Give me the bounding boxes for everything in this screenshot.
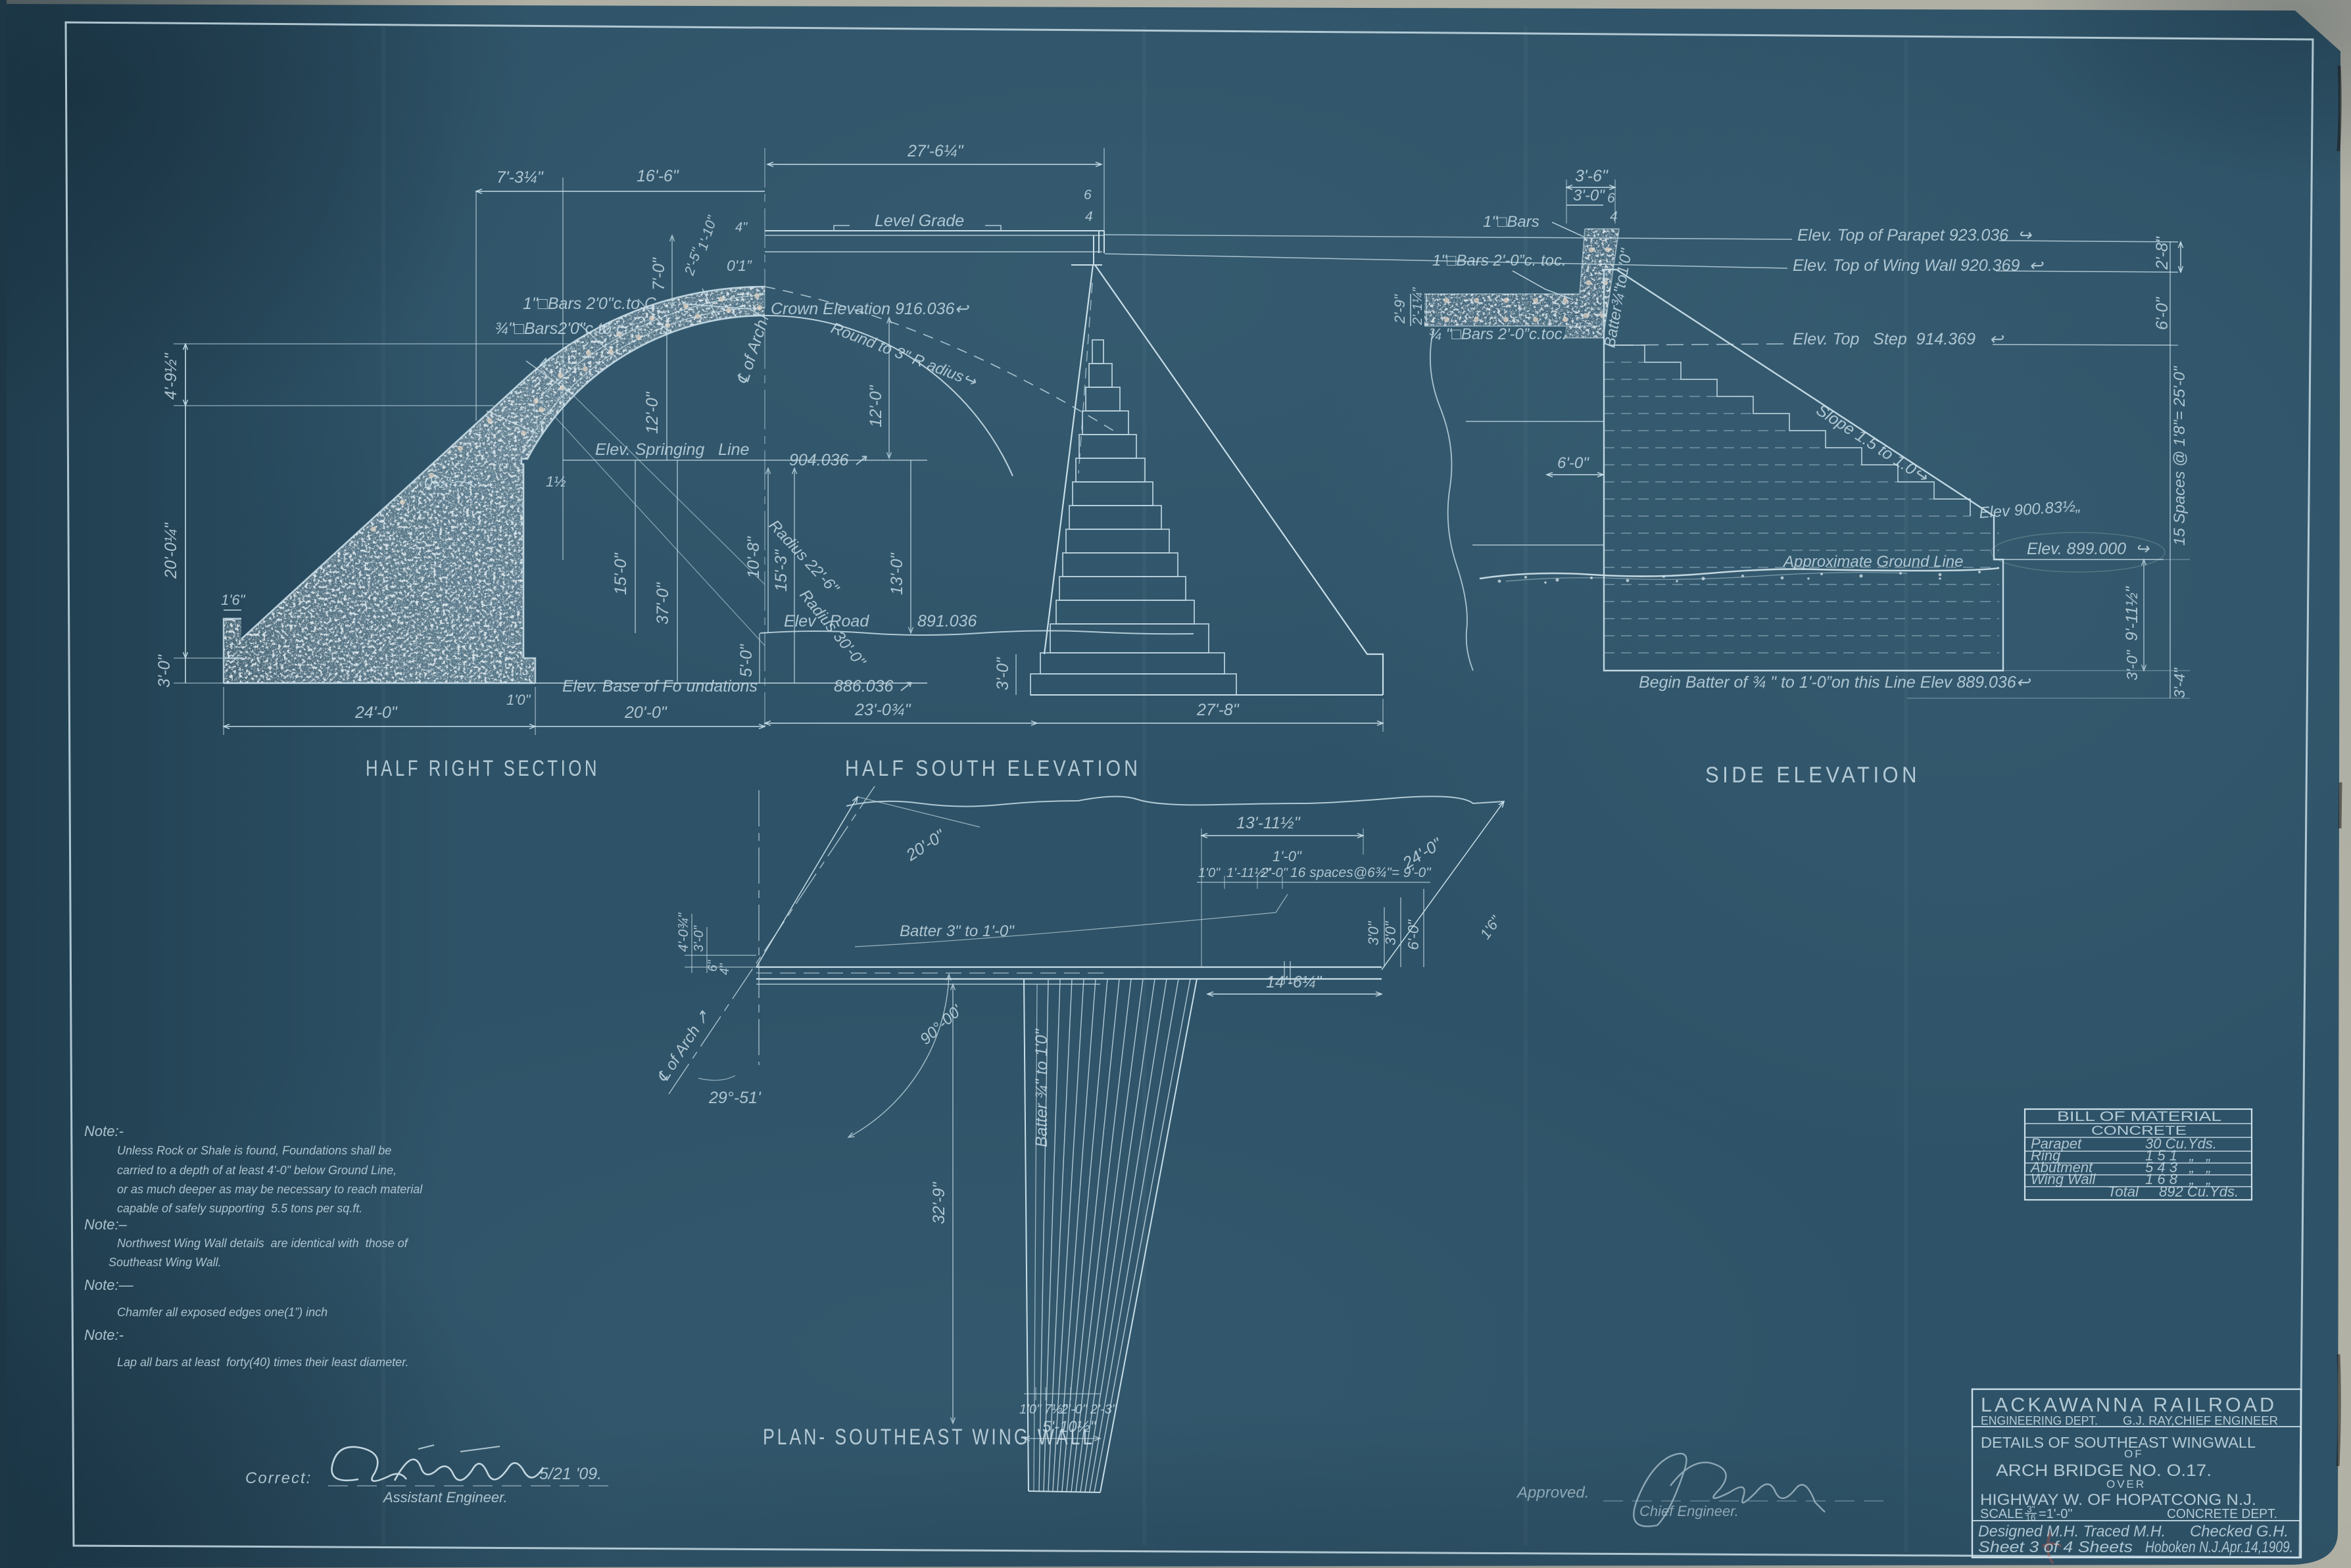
svg-text:4": 4" bbox=[735, 220, 748, 235]
svg-text:892 Cu.Yds.: 892 Cu.Yds. bbox=[2159, 1183, 2239, 1200]
svg-text:or as much deeper as may be ne: or as much deeper as may be necessary to… bbox=[117, 1183, 423, 1196]
svg-text:1"□Bars 2'0"c.to.C.: 1"□Bars 2'0"c.to.C. bbox=[523, 295, 661, 313]
svg-text:13'-11½": 13'-11½" bbox=[1236, 814, 1301, 832]
svg-text:Level Grade: Level Grade bbox=[875, 212, 964, 230]
svg-text:Southeast Wing Wall.: Southeast Wing Wall. bbox=[109, 1256, 222, 1269]
svg-text:3'-0": 3'-0" bbox=[1573, 187, 1605, 204]
svg-text:OF: OF bbox=[2124, 1448, 2144, 1460]
svg-text:32'-9": 32'-9" bbox=[930, 1181, 948, 1224]
svg-text:Chamfer all exposed edges one(: Chamfer all exposed edges one(1”) inch bbox=[117, 1306, 327, 1319]
svg-text:Unless Rock or Shale is found,: Unless Rock or Shale is found, Foundatio… bbox=[117, 1144, 391, 1157]
svg-text:2'-3": 2'-3" bbox=[1090, 1402, 1117, 1417]
svg-text:Checked G.H.: Checked G.H. bbox=[2190, 1523, 2289, 1540]
svg-text:3'-0": 3'-0" bbox=[994, 657, 1012, 690]
svg-text:20'-0¼": 20'-0¼" bbox=[162, 522, 180, 579]
svg-text:Designed M.H. Traced M.H.: Designed M.H. Traced M.H. bbox=[1978, 1523, 2166, 1540]
svg-text:Elev Road: Elev Road bbox=[784, 612, 869, 630]
svg-text:1'-0": 1'-0" bbox=[1272, 848, 1302, 865]
svg-text:PLAN- SOUTHEAST WING WALL: PLAN- SOUTHEAST WING WALL bbox=[763, 1425, 1095, 1450]
svg-text:6: 6 bbox=[1607, 191, 1615, 206]
svg-text:1'0": 1'0" bbox=[1198, 866, 1221, 880]
svg-text:3'0": 3'0" bbox=[1365, 920, 1382, 945]
svg-text:15 Spaces @ 1'8"= 25'-0": 15 Spaces @ 1'8"= 25'-0" bbox=[2171, 366, 2189, 546]
svg-text:5'-0": 5'-0" bbox=[737, 644, 756, 677]
svg-text:1'6": 1'6" bbox=[221, 592, 246, 608]
svg-text:12'-0": 12'-0" bbox=[867, 385, 885, 427]
svg-text:886.036 ↗: 886.036 ↗ bbox=[834, 677, 912, 696]
svg-text:0'1”: 0'1” bbox=[727, 257, 752, 274]
svg-text:¾ "□Bars 2'-0”c.toc.: ¾ "□Bars 2'-0”c.toc. bbox=[1428, 325, 1566, 343]
svg-text:7'-0": 7'-0" bbox=[650, 257, 668, 291]
svg-text:4: 4 bbox=[1610, 209, 1618, 224]
svg-text:3'-4": 3'-4" bbox=[2171, 667, 2188, 698]
svg-text:2'-8": 2'-8" bbox=[2153, 236, 2171, 270]
svg-text:15'-0": 15'-0" bbox=[612, 552, 630, 595]
svg-text:4: 4 bbox=[1085, 209, 1093, 224]
svg-text:1"□Bars 2'-0”c. toc.: 1"□Bars 2'-0”c. toc. bbox=[1432, 252, 1566, 270]
svg-text:Batter ¾" to 1'0": Batter ¾" to 1'0" bbox=[1032, 1028, 1051, 1147]
svg-text:27'-6¼": 27'-6¼" bbox=[907, 142, 964, 160]
svg-text:Chief Engineer.: Chief Engineer. bbox=[1639, 1503, 1739, 1519]
svg-text:4": 4" bbox=[718, 962, 732, 975]
svg-text:3'0": 3'0" bbox=[1382, 920, 1399, 945]
svg-text:14'-6¼": 14'-6¼" bbox=[1266, 973, 1322, 991]
svg-text:16 spaces@6¾"= 9'-0": 16 spaces@6¾"= 9'-0" bbox=[1290, 865, 1432, 880]
svg-text:Total: Total bbox=[2108, 1183, 2139, 1200]
svg-text:23'-0¾": 23'-0¾" bbox=[854, 701, 911, 719]
svg-text:Assistant Engineer.: Assistant Engineer. bbox=[382, 1489, 508, 1506]
svg-text:4'-0¾": 4'-0¾" bbox=[676, 912, 691, 952]
svg-text:6'-0": 6'-0" bbox=[2153, 297, 2171, 330]
svg-text:2'-0": 2'-0" bbox=[1060, 1402, 1088, 1417]
svg-text:Note:-: Note:- bbox=[84, 1123, 124, 1139]
svg-text:DETAILS OF SOUTHEAST WINGWALL: DETAILS OF SOUTHEAST WINGWALL bbox=[1981, 1434, 2256, 1451]
svg-text:Approximate Ground Line: Approximate Ground Line bbox=[1782, 553, 1964, 571]
svg-text:Elev. Top of Wing Wall 920.369: Elev. Top of Wing Wall 920.369 ↩ bbox=[1793, 256, 2044, 275]
svg-text:2'-9": 2'-9" bbox=[1392, 294, 1408, 324]
svg-text:Elev. Base of Fo undations: Elev. Base of Fo undations bbox=[562, 677, 758, 696]
svg-text:Elev. Top Step 914.369 ↩: Elev. Top Step 914.369 ↩ bbox=[1793, 330, 2004, 348]
svg-text:Crown Elevation 916.036↩: Crown Elevation 916.036↩ bbox=[771, 300, 969, 318]
svg-text:HALF RIGHT SECTION: HALF RIGHT SECTION bbox=[366, 756, 600, 781]
svg-text:BILL OF MATERIAL: BILL OF MATERIAL bbox=[2057, 1109, 2221, 1124]
svg-text:Sheet 3 of 4 Sheets: Sheet 3 of 4 Sheets bbox=[1978, 1538, 2133, 1556]
svg-text:ENGINEERING DEPT.: ENGINEERING DEPT. bbox=[1981, 1414, 2098, 1427]
svg-text:0½": 0½" bbox=[424, 474, 452, 491]
svg-text:16'-6": 16'-6" bbox=[637, 167, 679, 185]
svg-text:SIDE ELEVATION: SIDE ELEVATION bbox=[1705, 763, 1920, 788]
svg-text:Elev. 899.000 ↪: Elev. 899.000 ↪ bbox=[2027, 540, 2150, 558]
svg-text:CONCRETE DEPT.: CONCRETE DEPT. bbox=[2167, 1507, 2277, 1521]
svg-text:HIGHWAY W. OF HOPATCONG N.J.: HIGHWAY W. OF HOPATCONG N.J. bbox=[1980, 1491, 2256, 1509]
svg-text:27'-8": 27'-8" bbox=[1196, 701, 1240, 719]
svg-text:Elev. Springing Line: Elev. Springing Line bbox=[595, 440, 749, 459]
svg-text:¾"□Bars2'0"c.to c.: ¾"□Bars2'0"c.to c. bbox=[495, 320, 629, 338]
svg-text:3'-6": 3'-6" bbox=[1575, 167, 1609, 185]
svg-text:1'0": 1'0" bbox=[506, 692, 531, 708]
svg-text:Note:–: Note:– bbox=[84, 1216, 128, 1233]
svg-text:6'-0": 6'-0" bbox=[1557, 454, 1589, 472]
svg-text:4'-9½": 4'-9½" bbox=[162, 352, 180, 400]
svg-text:9'-11½": 9'-11½" bbox=[2123, 586, 2141, 641]
svg-text:29°-51': 29°-51' bbox=[708, 1089, 762, 1107]
svg-text:Approved.: Approved. bbox=[1516, 1484, 1589, 1502]
svg-text:1½: 1½ bbox=[546, 473, 566, 490]
svg-text:1'0": 1'0" bbox=[1019, 1402, 1042, 1417]
svg-text:24'-0": 24'-0" bbox=[354, 703, 398, 722]
svg-text:OVER: OVER bbox=[2106, 1478, 2146, 1490]
svg-text:Note:-: Note:- bbox=[84, 1327, 124, 1343]
svg-text:3'-0": 3'-0" bbox=[692, 925, 706, 952]
svg-text:Begin Batter of ¾ " to 1'-0”on: Begin Batter of ¾ " to 1'-0”on this Line… bbox=[1639, 673, 2031, 692]
svg-text:13'-0": 13'-0" bbox=[888, 552, 906, 595]
svg-text:SCALE: SCALE bbox=[1980, 1507, 2024, 1521]
svg-text:3'-0": 3'-0" bbox=[155, 654, 174, 688]
svg-text:891.036: 891.036 bbox=[917, 612, 977, 630]
svg-text:Elev. Top of Parapet 923.036: Elev. Top of Parapet 923.036 ↪ bbox=[1797, 226, 2032, 245]
svg-text:3'-0": 3'-0" bbox=[2123, 649, 2141, 680]
svg-text:Lap all bars at least forty(4: Lap all bars at least forty(40) times th… bbox=[117, 1356, 409, 1369]
svg-text:carried to a depth of at least: carried to a depth of at least 4'-0" bel… bbox=[117, 1164, 397, 1177]
svg-text:7'-3¼": 7'-3¼" bbox=[497, 168, 544, 187]
svg-text:=1'-0": =1'-0" bbox=[2039, 1507, 2073, 1521]
svg-text:Wing Wall: Wing Wall bbox=[2031, 1171, 2097, 1187]
svg-text:15'-3": 15'-3" bbox=[772, 549, 790, 592]
svg-text:904.036 ↗: 904.036 ↗ bbox=[789, 451, 867, 469]
svg-text:10'-8": 10'-8" bbox=[744, 536, 763, 579]
svg-text:Hoboken N.J.Apr.14,1909.: Hoboken N.J.Apr.14,1909. bbox=[2145, 1538, 2293, 1556]
svg-text:2'-1¼": 2'-1¼" bbox=[1411, 287, 1425, 325]
svg-text:12'-0": 12'-0" bbox=[643, 391, 662, 434]
svg-text:5/21 '09.: 5/21 '09. bbox=[539, 1465, 602, 1483]
svg-text:Note:—: Note:— bbox=[84, 1277, 134, 1293]
svg-text:capable of safely supporting: capable of safely supporting 5.5 tons pe… bbox=[117, 1202, 362, 1215]
svg-text:G.J. RAY,CHIEF ENGINEER: G.J. RAY,CHIEF ENGINEER bbox=[2123, 1414, 2278, 1427]
svg-text:Correct:: Correct: bbox=[245, 1469, 312, 1487]
svg-text:37'-0": 37'-0" bbox=[654, 582, 672, 625]
svg-text:1"□Bars: 1"□Bars bbox=[1483, 213, 1539, 231]
svg-text:HALF SOUTH ELEVATION: HALF SOUTH ELEVATION bbox=[845, 756, 1141, 781]
svg-text:2'-0": 2'-0" bbox=[1261, 866, 1288, 880]
svg-text:6: 6 bbox=[1084, 187, 1092, 202]
svg-text:ARCH BRIDGE NO. O.17.: ARCH BRIDGE NO. O.17. bbox=[1996, 1461, 2212, 1480]
svg-text:6'-0": 6'-0" bbox=[1405, 918, 1422, 950]
svg-text:LACKAWANNA RAILROAD: LACKAWANNA RAILROAD bbox=[1981, 1393, 2277, 1416]
svg-text:Northwest Wing Wall details a: Northwest Wing Wall details are identica… bbox=[117, 1237, 409, 1250]
svg-text:20'-0": 20'-0" bbox=[624, 703, 667, 722]
